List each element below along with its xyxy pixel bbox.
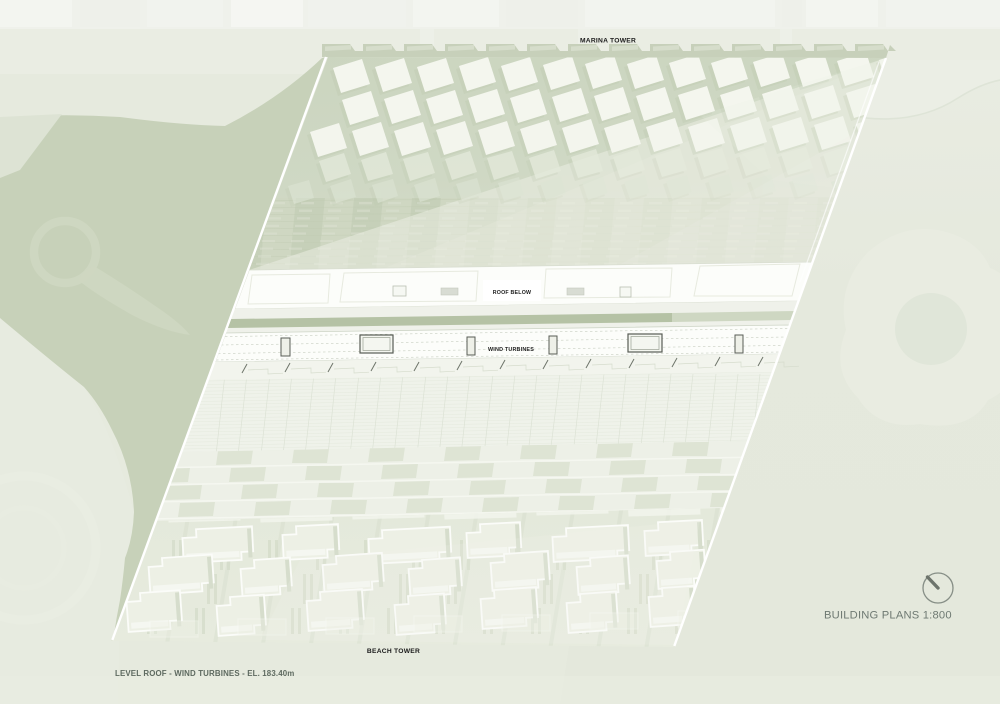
- svg-text:BEACH TOWER: BEACH TOWER: [367, 648, 420, 655]
- svg-text:LEVEL ROOF - WIND TURBINES - E: LEVEL ROOF - WIND TURBINES - EL. 183.40m: [115, 669, 294, 678]
- svg-text:WIND TURBINES: WIND TURBINES: [488, 347, 534, 353]
- svg-text:BUILDING PLANS 1:800: BUILDING PLANS 1:800: [824, 610, 952, 622]
- svg-text:ROOF BELOW: ROOF BELOW: [493, 290, 532, 296]
- svg-text:MARINA TOWER: MARINA TOWER: [580, 38, 636, 45]
